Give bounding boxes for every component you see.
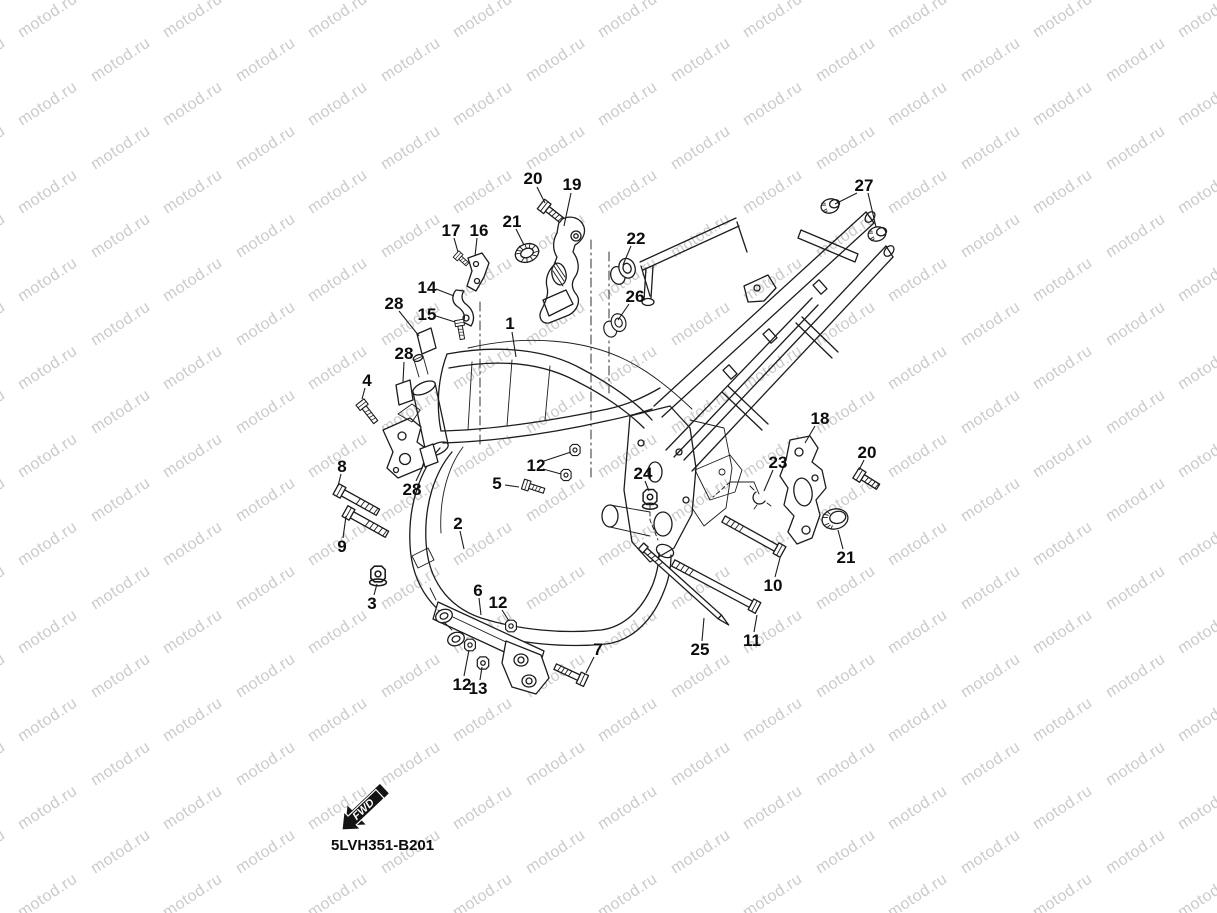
watermark-text: motod.ru xyxy=(1103,563,1169,614)
watermark-text: motod.ru xyxy=(88,651,154,702)
watermark-text: motod.ru xyxy=(450,695,516,746)
callout-leader-line xyxy=(544,452,571,461)
watermark-text: motod.ru xyxy=(1103,123,1169,174)
callout-number: 15 xyxy=(418,305,437,324)
callout-13: 13 xyxy=(469,667,488,698)
watermark-text: motod.ru xyxy=(88,123,154,174)
watermark-text: motod.ru xyxy=(668,739,734,790)
watermark-text: motod.ru xyxy=(1103,651,1169,702)
watermark-text: motod.ru xyxy=(1103,827,1169,878)
watermark-text: motod.ru xyxy=(15,343,81,394)
callout-number: 22 xyxy=(627,229,646,248)
sticker-28-a xyxy=(417,328,436,354)
watermark-text: motod.ru xyxy=(160,871,226,913)
watermark-text: motod.ru xyxy=(305,695,371,746)
watermark-text: motod.ru xyxy=(813,123,879,174)
watermark-text: motod.ru xyxy=(88,299,154,350)
callout-number: 25 xyxy=(691,640,710,659)
watermark-text: motod.ru xyxy=(15,783,81,834)
watermark-text: motod.ru xyxy=(885,255,951,306)
watermark-text: motod.ru xyxy=(305,0,371,41)
frame-diagram-artwork xyxy=(333,197,896,694)
watermark-text: motod.ru xyxy=(233,651,299,702)
watermark-text: motod.ru xyxy=(885,0,951,41)
watermark-text: motod.ru xyxy=(0,475,8,526)
watermark-text: motod.ru xyxy=(233,563,299,614)
callout-21: 21 xyxy=(837,530,856,567)
callout-leader-line xyxy=(454,238,458,252)
watermark-text: motod.ru xyxy=(0,387,8,438)
callout-leader-line xyxy=(479,598,481,615)
callout-number: 11 xyxy=(743,631,761,650)
watermark-text: motod.ru xyxy=(523,563,589,614)
watermark-text: motod.ru xyxy=(1175,167,1217,218)
watermark-text: motod.ru xyxy=(305,255,371,306)
watermark-text: motod.ru xyxy=(1175,0,1217,41)
watermark-text: motod.ru xyxy=(1103,387,1169,438)
callout-number: 18 xyxy=(811,409,830,428)
watermark-text: motod.ru xyxy=(1175,519,1217,570)
callout-number: 1 xyxy=(505,314,514,333)
callout-number: 20 xyxy=(858,443,877,462)
watermark-text: motod.ru xyxy=(233,387,299,438)
watermark-text: motod.ru xyxy=(595,607,661,658)
watermark-text: motod.ru xyxy=(595,79,661,130)
watermark-layer: motod.rumotod.rumotod.rumotod.rumotod.ru… xyxy=(0,0,1217,913)
watermark-text: motod.ru xyxy=(1175,255,1217,306)
watermark-text: motod.ru xyxy=(1175,343,1217,394)
callout-number: 6 xyxy=(473,581,482,600)
watermark-text: motod.ru xyxy=(233,475,299,526)
callout-14: 14 xyxy=(418,278,454,297)
callout-2: 2 xyxy=(453,514,464,549)
watermark-text: motod.ru xyxy=(15,519,81,570)
watermark-text: motod.ru xyxy=(1030,343,1096,394)
watermark-text: motod.ru xyxy=(233,299,299,350)
watermark-text: motod.ru xyxy=(0,827,8,878)
nut-3 xyxy=(370,566,387,586)
watermark-text: motod.ru xyxy=(1103,211,1169,262)
callout-number: 21 xyxy=(837,548,856,567)
watermark-text: motod.ru xyxy=(0,651,8,702)
exploded-parts-diagram: motod.rumotod.rumotod.rumotod.rumotod.ru… xyxy=(0,0,1217,913)
watermark-text: motod.ru xyxy=(885,343,951,394)
watermark-text: motod.ru xyxy=(1030,783,1096,834)
watermark-text: motod.ru xyxy=(668,123,734,174)
callout-15: 15 xyxy=(418,305,455,324)
callout-number: 19 xyxy=(563,175,582,194)
callout-leader-line xyxy=(543,469,561,474)
watermark-text: motod.ru xyxy=(1030,519,1096,570)
watermark-text: motod.ru xyxy=(1030,431,1096,482)
watermark-text: motod.ru xyxy=(958,123,1024,174)
watermark-text: motod.ru xyxy=(0,123,8,174)
watermark-text: motod.ru xyxy=(233,211,299,262)
watermark-text: motod.ru xyxy=(885,167,951,218)
watermark-text: motod.ru xyxy=(958,563,1024,614)
watermark-text: motod.ru xyxy=(15,0,81,41)
watermark-text: motod.ru xyxy=(885,607,951,658)
watermark-text: motod.ru xyxy=(958,475,1024,526)
watermark-text: motod.ru xyxy=(378,739,444,790)
watermark-text: motod.ru xyxy=(160,255,226,306)
watermark-text: motod.ru xyxy=(0,739,8,790)
callout-21: 21 xyxy=(503,212,524,245)
drawing-code: 5LVH351-B201 xyxy=(331,837,434,854)
watermark-text: motod.ru xyxy=(813,827,879,878)
parts-diagram-page: motod.rumotod.rumotod.rumotod.rumotod.ru… xyxy=(0,0,1217,913)
watermark-text: motod.ru xyxy=(595,695,661,746)
callout-3: 3 xyxy=(367,584,377,613)
callout-20: 20 xyxy=(524,169,545,203)
nut-12-c xyxy=(506,620,517,632)
nut-12-b xyxy=(561,469,571,480)
watermark-text: motod.ru xyxy=(958,651,1024,702)
watermark-text: motod.ru xyxy=(1103,299,1169,350)
callout-11: 11 xyxy=(743,615,761,650)
watermark-text: motod.ru xyxy=(813,739,879,790)
watermark-text: motod.ru xyxy=(1175,607,1217,658)
callout-4: 4 xyxy=(362,371,372,399)
watermark-text: motod.ru xyxy=(88,563,154,614)
watermark-text: motod.ru xyxy=(813,651,879,702)
callout-number: 27 xyxy=(855,176,874,195)
watermark-text: motod.ru xyxy=(450,871,516,913)
bolt-8 xyxy=(333,484,381,518)
callout-number: 5 xyxy=(492,474,501,493)
watermark-text: motod.ru xyxy=(523,387,589,438)
callout-28: 28 xyxy=(395,344,414,382)
cap-27-left xyxy=(819,197,841,215)
callout-number: 28 xyxy=(395,344,414,363)
watermark-text: motod.ru xyxy=(0,563,8,614)
callout-number: 13 xyxy=(469,679,488,698)
watermark-text: motod.ru xyxy=(1030,871,1096,913)
callout-number: 3 xyxy=(367,594,376,613)
watermark-text: motod.ru xyxy=(160,0,226,41)
watermark-text: motod.ru xyxy=(450,0,516,41)
callout-leader-line xyxy=(775,558,780,577)
watermark-text: motod.ru xyxy=(885,431,951,482)
watermark-text: motod.ru xyxy=(595,871,661,913)
watermark-text: motod.ru xyxy=(958,827,1024,878)
watermark-text: motod.ru xyxy=(595,0,661,41)
watermark-text: motod.ru xyxy=(1175,431,1217,482)
watermark-text: motod.ru xyxy=(15,79,81,130)
watermark-text: motod.ru xyxy=(15,255,81,306)
watermark-text: motod.ru xyxy=(88,387,154,438)
watermark-text: motod.ru xyxy=(450,167,516,218)
watermark-text: motod.ru xyxy=(885,695,951,746)
watermark-text: motod.ru xyxy=(160,783,226,834)
watermark-text: motod.ru xyxy=(1103,475,1169,526)
watermark-text: motod.ru xyxy=(958,387,1024,438)
watermark-text: motod.ru xyxy=(523,827,589,878)
nut-12-d xyxy=(465,639,476,651)
watermark-text: motod.ru xyxy=(885,783,951,834)
callout-5: 5 xyxy=(492,474,519,493)
callout-number: 12 xyxy=(527,456,546,475)
callout-number: 7 xyxy=(593,640,602,659)
callout-number: 10 xyxy=(764,576,783,595)
watermark-text: motod.ru xyxy=(885,79,951,130)
watermark-text: motod.ru xyxy=(813,563,879,614)
watermark-text: motod.ru xyxy=(1030,167,1096,218)
watermark-text: motod.ru xyxy=(523,475,589,526)
callout-leader-line xyxy=(516,229,524,245)
callout-number: 12 xyxy=(489,593,508,612)
callout-25: 25 xyxy=(691,618,710,659)
callout-leader-line xyxy=(537,187,545,203)
watermark-text: motod.ru xyxy=(0,35,8,86)
watermark-text: motod.ru xyxy=(595,167,661,218)
callout-leader-line xyxy=(838,530,843,549)
watermark-text: motod.ru xyxy=(160,167,226,218)
watermark-text: motod.ru xyxy=(305,167,371,218)
callout-number: 28 xyxy=(403,480,422,499)
callout-number: 9 xyxy=(337,537,346,556)
callout-number: 16 xyxy=(470,221,489,240)
callout-number: 8 xyxy=(337,457,346,476)
watermark-text: motod.ru xyxy=(1103,35,1169,86)
watermark-text: motod.ru xyxy=(740,167,806,218)
watermark-text: motod.ru xyxy=(378,123,444,174)
callout-number: 2 xyxy=(453,514,462,533)
damper-26 xyxy=(600,312,629,339)
watermark-text: motod.ru xyxy=(668,827,734,878)
watermark-text: motod.ru xyxy=(450,783,516,834)
watermark-text: motod.ru xyxy=(160,79,226,130)
watermark-text: motod.ru xyxy=(958,739,1024,790)
watermark-text: motod.ru xyxy=(740,79,806,130)
callout-number: 26 xyxy=(626,287,645,306)
watermark-text: motod.ru xyxy=(378,651,444,702)
watermark-text: motod.ru xyxy=(160,607,226,658)
watermark-text: motod.ru xyxy=(233,739,299,790)
bolt-20-top xyxy=(537,199,565,224)
watermark-text: motod.ru xyxy=(740,783,806,834)
watermark-text: motod.ru xyxy=(885,871,951,913)
callout-number: 23 xyxy=(769,453,788,472)
watermark-text: motod.ru xyxy=(15,167,81,218)
watermark-text: motod.ru xyxy=(450,79,516,130)
watermark-text: motod.ru xyxy=(15,871,81,913)
callout-8: 8 xyxy=(337,457,346,486)
watermark-text: motod.ru xyxy=(88,211,154,262)
callout-leader-line xyxy=(436,316,455,322)
callout-leader-line xyxy=(764,470,773,491)
watermark-text: motod.ru xyxy=(740,695,806,746)
watermark-text: motod.ru xyxy=(595,343,661,394)
watermark-text: motod.ru xyxy=(1103,739,1169,790)
callout-number: 21 xyxy=(503,212,522,231)
callout-leader-line xyxy=(475,238,477,256)
callout-leader-line xyxy=(403,362,404,382)
watermark-text: motod.ru xyxy=(15,431,81,482)
watermark-text: motod.ru xyxy=(1030,255,1096,306)
bolt-4 xyxy=(356,399,380,425)
watermark-text: motod.ru xyxy=(378,35,444,86)
watermark-text: motod.ru xyxy=(813,299,879,350)
watermark-text: motod.ru xyxy=(523,35,589,86)
callout-10: 10 xyxy=(764,558,783,595)
watermark-text: motod.ru xyxy=(595,783,661,834)
sticker-28-b xyxy=(396,380,413,405)
watermark-text: motod.ru xyxy=(160,519,226,570)
callout-16: 16 xyxy=(470,221,489,256)
watermark-text: motod.ru xyxy=(233,123,299,174)
watermark-text: motod.ru xyxy=(305,871,371,913)
watermark-text: motod.ru xyxy=(88,475,154,526)
watermark-text: motod.ru xyxy=(88,739,154,790)
watermark-text: motod.ru xyxy=(740,0,806,41)
watermark-text: motod.ru xyxy=(305,607,371,658)
watermark-text: motod.ru xyxy=(88,827,154,878)
watermark-text: motod.ru xyxy=(88,35,154,86)
watermark-text: motod.ru xyxy=(15,695,81,746)
watermark-text: motod.ru xyxy=(1175,783,1217,834)
watermark-text: motod.ru xyxy=(305,343,371,394)
callout-leader-line xyxy=(754,615,757,632)
watermark-text: motod.ru xyxy=(160,431,226,482)
watermark-text: motod.ru xyxy=(740,871,806,913)
callout-number: 28 xyxy=(385,294,404,313)
watermark-text: motod.ru xyxy=(523,123,589,174)
watermark-text: motod.ru xyxy=(1030,79,1096,130)
callout-leader-line xyxy=(505,485,519,487)
watermark-text: motod.ru xyxy=(1175,871,1217,913)
watermark-text: motod.ru xyxy=(233,35,299,86)
watermark-text: motod.ru xyxy=(305,79,371,130)
watermark-text: motod.ru xyxy=(0,211,8,262)
callout-17: 17 xyxy=(442,221,461,252)
watermark-text: motod.ru xyxy=(1030,607,1096,658)
callout-number: 24 xyxy=(634,464,653,483)
watermark-text: motod.ru xyxy=(1030,695,1096,746)
watermark-text: motod.ru xyxy=(885,519,951,570)
callout-number: 4 xyxy=(362,371,372,390)
watermark-text: motod.ru xyxy=(160,343,226,394)
callout-6: 6 xyxy=(473,581,482,615)
callout-number: 14 xyxy=(418,278,437,297)
watermark-text: motod.ru xyxy=(378,211,444,262)
watermark-text: motod.ru xyxy=(1175,695,1217,746)
callout-number: 17 xyxy=(442,221,461,240)
watermark-text: motod.ru xyxy=(233,827,299,878)
watermark-text: motod.ru xyxy=(1030,0,1096,41)
watermark-text: motod.ru xyxy=(958,299,1024,350)
watermark-text: motod.ru xyxy=(523,739,589,790)
callout-leader-line xyxy=(464,650,469,676)
watermark-text: motod.ru xyxy=(0,299,8,350)
watermark-text: motod.ru xyxy=(958,211,1024,262)
callout-24: 24 xyxy=(634,464,653,491)
watermark-text: motod.ru xyxy=(813,35,879,86)
callout-leader-line xyxy=(702,618,704,641)
nut-13 xyxy=(477,657,488,669)
watermark-text: motod.ru xyxy=(1175,79,1217,130)
watermark-text: motod.ru xyxy=(160,695,226,746)
bolt-5 xyxy=(521,479,545,496)
callout-number: 20 xyxy=(524,169,543,188)
watermark-text: motod.ru xyxy=(15,607,81,658)
watermark-text: motod.ru xyxy=(668,35,734,86)
callout-20: 20 xyxy=(858,443,877,470)
watermark-text: motod.ru xyxy=(958,35,1024,86)
nut-12-a xyxy=(570,444,580,455)
